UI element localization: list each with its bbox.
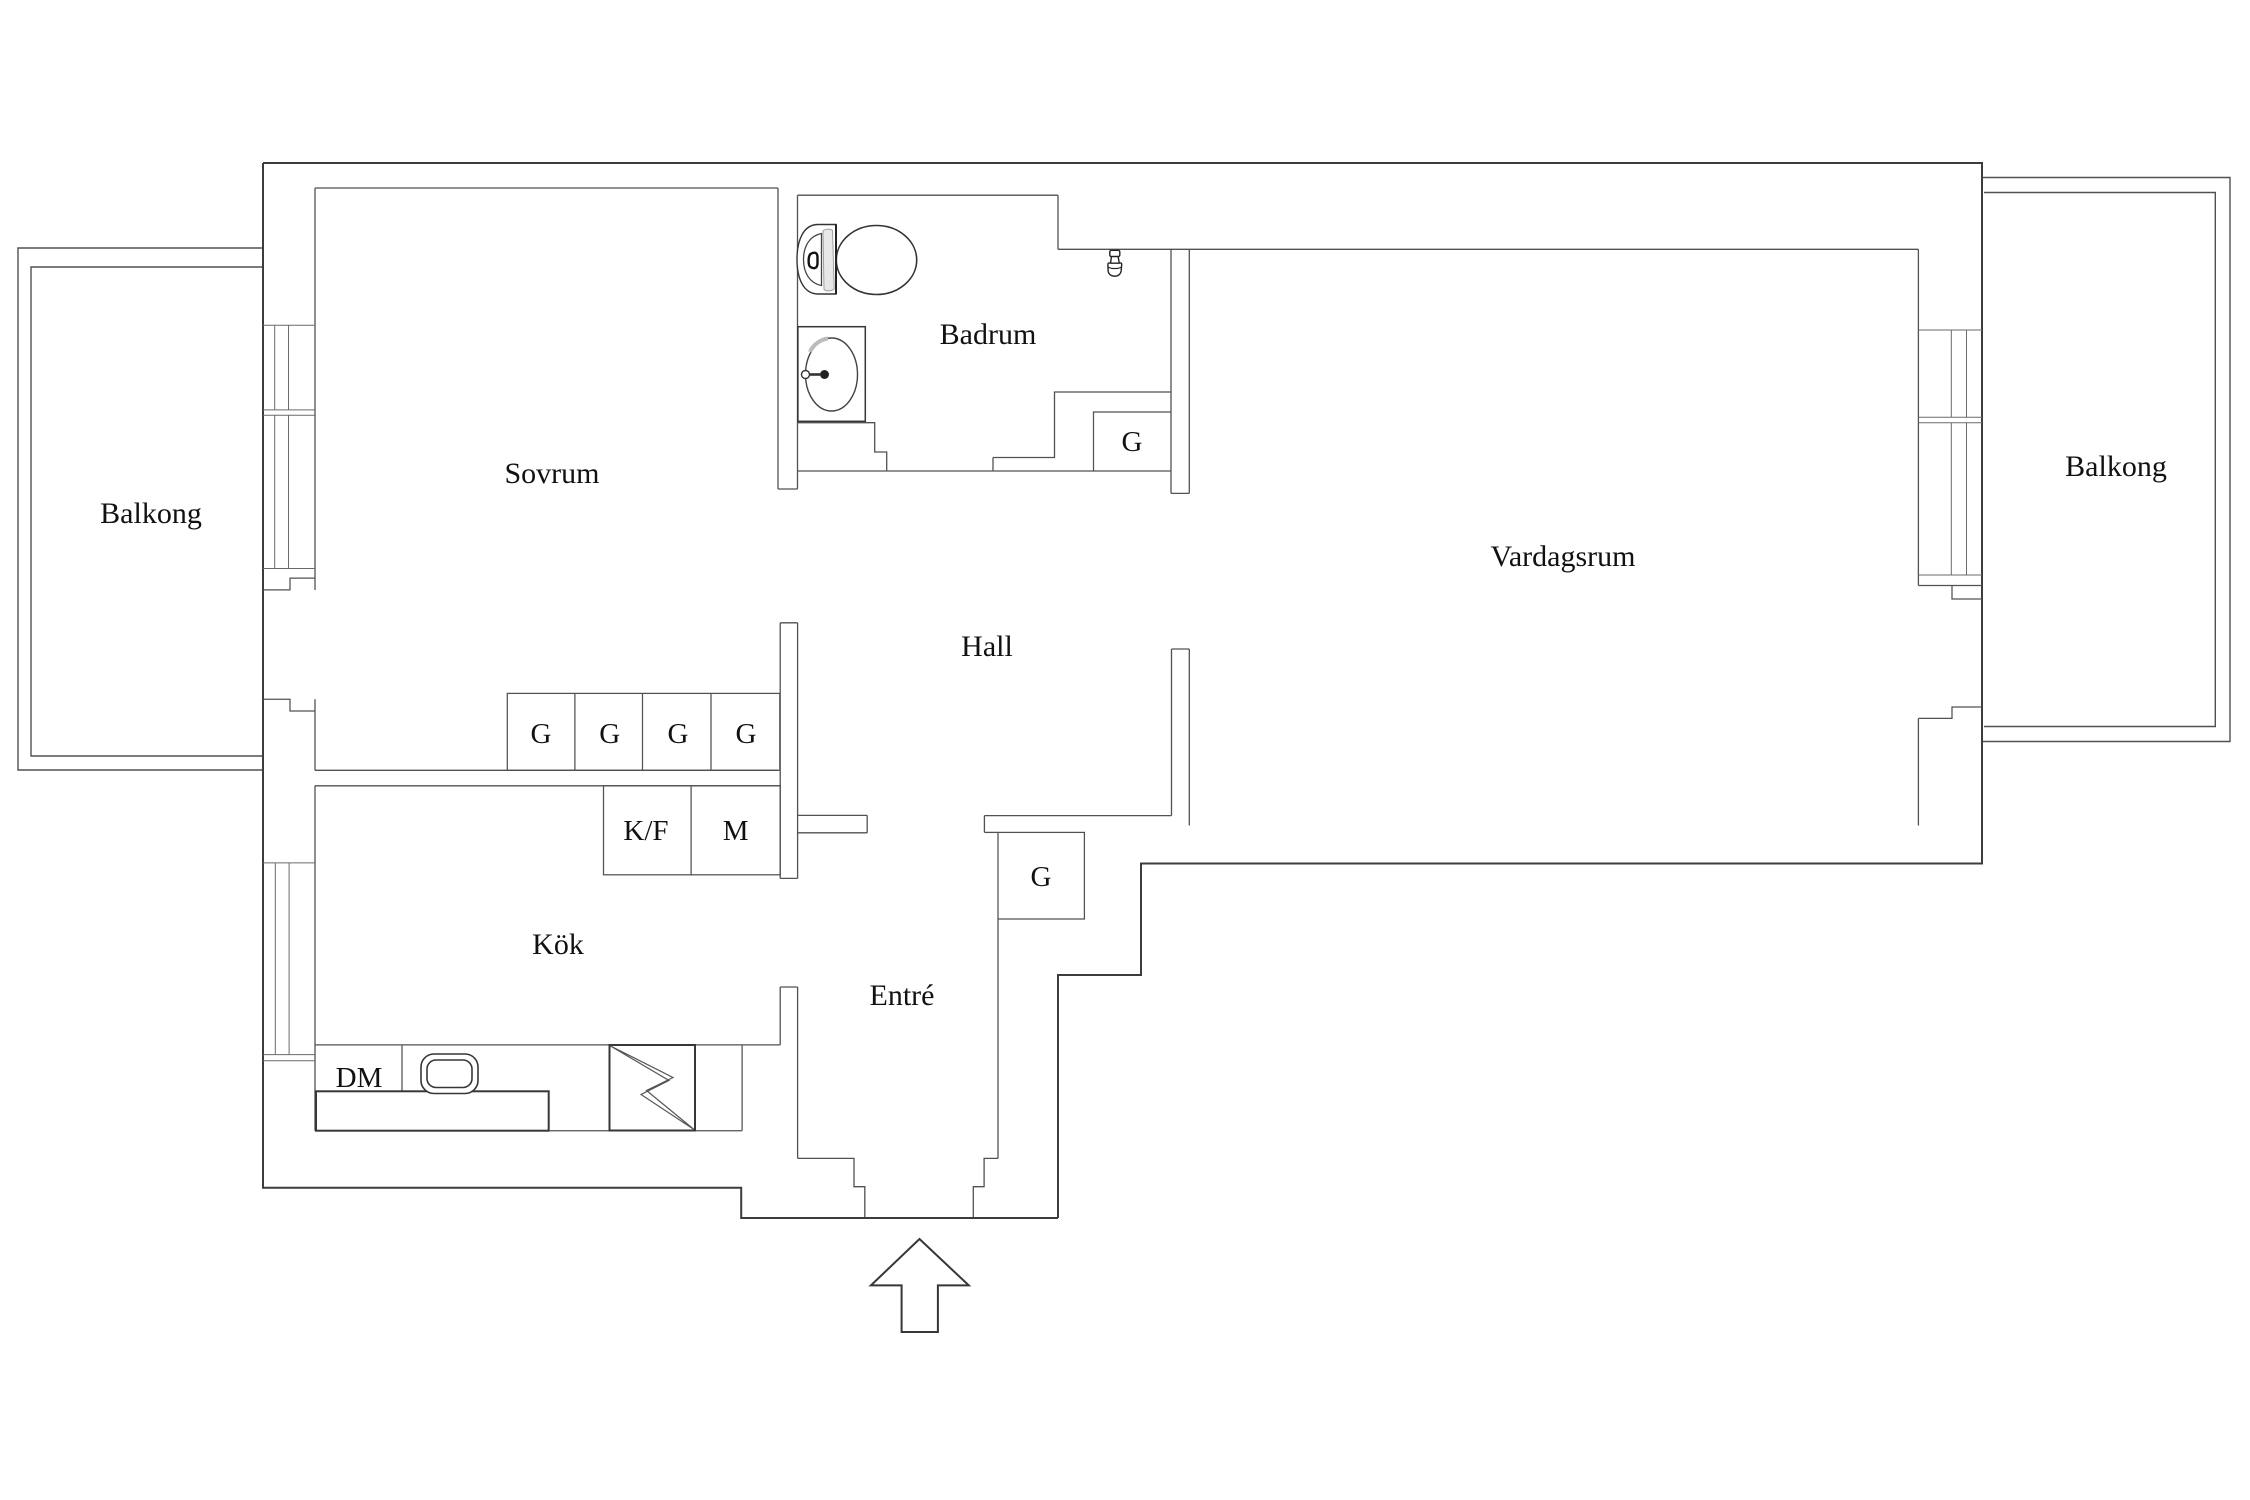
svg-text:Balkong: Balkong xyxy=(2065,450,2167,483)
svg-text:Sovrum: Sovrum xyxy=(504,457,599,490)
svg-text:K/F: K/F xyxy=(623,815,668,847)
svg-text:G: G xyxy=(736,718,757,750)
svg-text:G: G xyxy=(1031,861,1052,893)
svg-text:Vardagsrum: Vardagsrum xyxy=(1491,540,1636,573)
svg-text:Balkong: Balkong xyxy=(100,497,202,530)
svg-text:G: G xyxy=(531,718,552,750)
svg-text:G: G xyxy=(599,718,620,750)
svg-text:G: G xyxy=(1122,426,1143,458)
svg-text:Kök: Kök xyxy=(532,928,584,961)
svg-text:DM: DM xyxy=(336,1062,383,1094)
svg-text:Entré: Entré xyxy=(870,979,935,1012)
svg-text:Badrum: Badrum xyxy=(940,318,1037,351)
svg-text:G: G xyxy=(668,718,689,750)
svg-text:Hall: Hall xyxy=(961,630,1013,663)
svg-text:M: M xyxy=(723,815,749,847)
